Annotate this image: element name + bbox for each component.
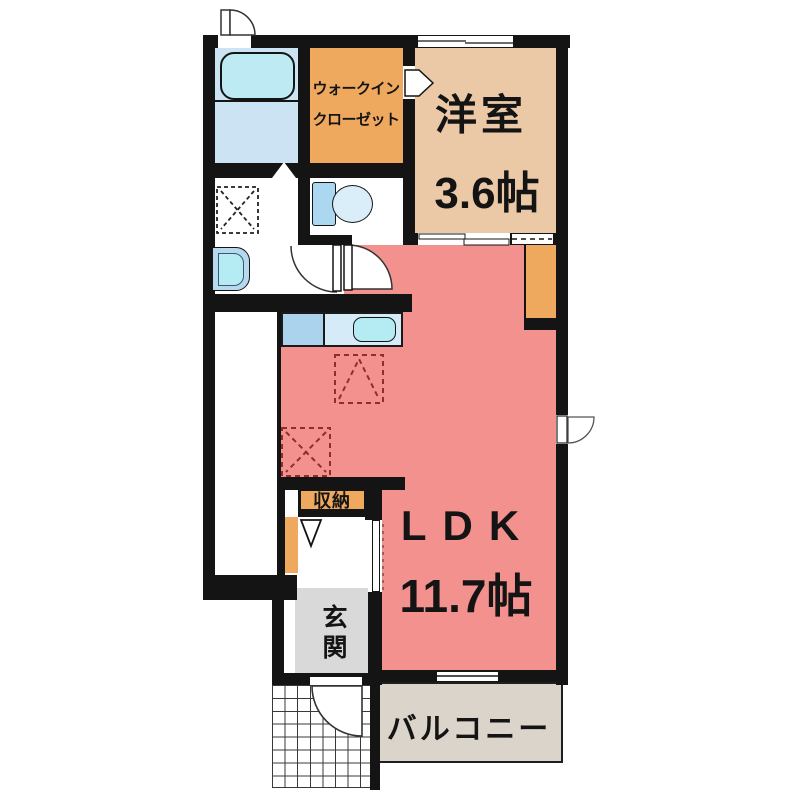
door-leaf-top-left <box>221 10 230 35</box>
refrigerator-space-icon <box>335 355 383 403</box>
symbol-overlay <box>0 0 800 800</box>
sliding-door-panel-2 <box>464 239 509 245</box>
sliding-door-panel-1 <box>419 234 465 239</box>
floorplan: ウォークイン クローゼット 洋室 3.6帖 LDK 11.7帖 収納 玄関 バル… <box>0 0 800 800</box>
label-entrance: 玄関 <box>315 604 351 664</box>
door-leaf-toilet <box>344 245 352 290</box>
label-ldk: LDK <box>401 502 535 550</box>
label-western-room-size: 3.6帖 <box>434 157 539 221</box>
door-leaf-ldk-right <box>557 416 567 443</box>
label-ldk-size: 11.7帖 <box>400 560 533 626</box>
label-balcony: バルコニー <box>387 704 551 748</box>
door-swing-icon-toilet <box>348 245 392 289</box>
appliance-space-icon <box>282 428 330 476</box>
door-flag-icon-wic <box>405 70 433 96</box>
door-swing-icon-washroom <box>291 246 337 292</box>
door-leaf-washroom <box>333 245 341 291</box>
door-swing-icon-ldk-right <box>568 417 594 443</box>
label-wic-line1: ウォークイン <box>312 78 399 99</box>
entrance-step-icon <box>301 520 321 546</box>
label-western-room: 洋室 <box>435 82 527 143</box>
bath-door-triangle-icon <box>272 162 296 178</box>
door-swing-icon-top-left <box>230 10 255 35</box>
washing-machine-space-icon <box>217 187 258 233</box>
label-storage: 収納 <box>313 487 351 513</box>
label-wic-line2: クローゼット <box>312 109 399 130</box>
door-swing-icon-entrance <box>312 686 362 736</box>
